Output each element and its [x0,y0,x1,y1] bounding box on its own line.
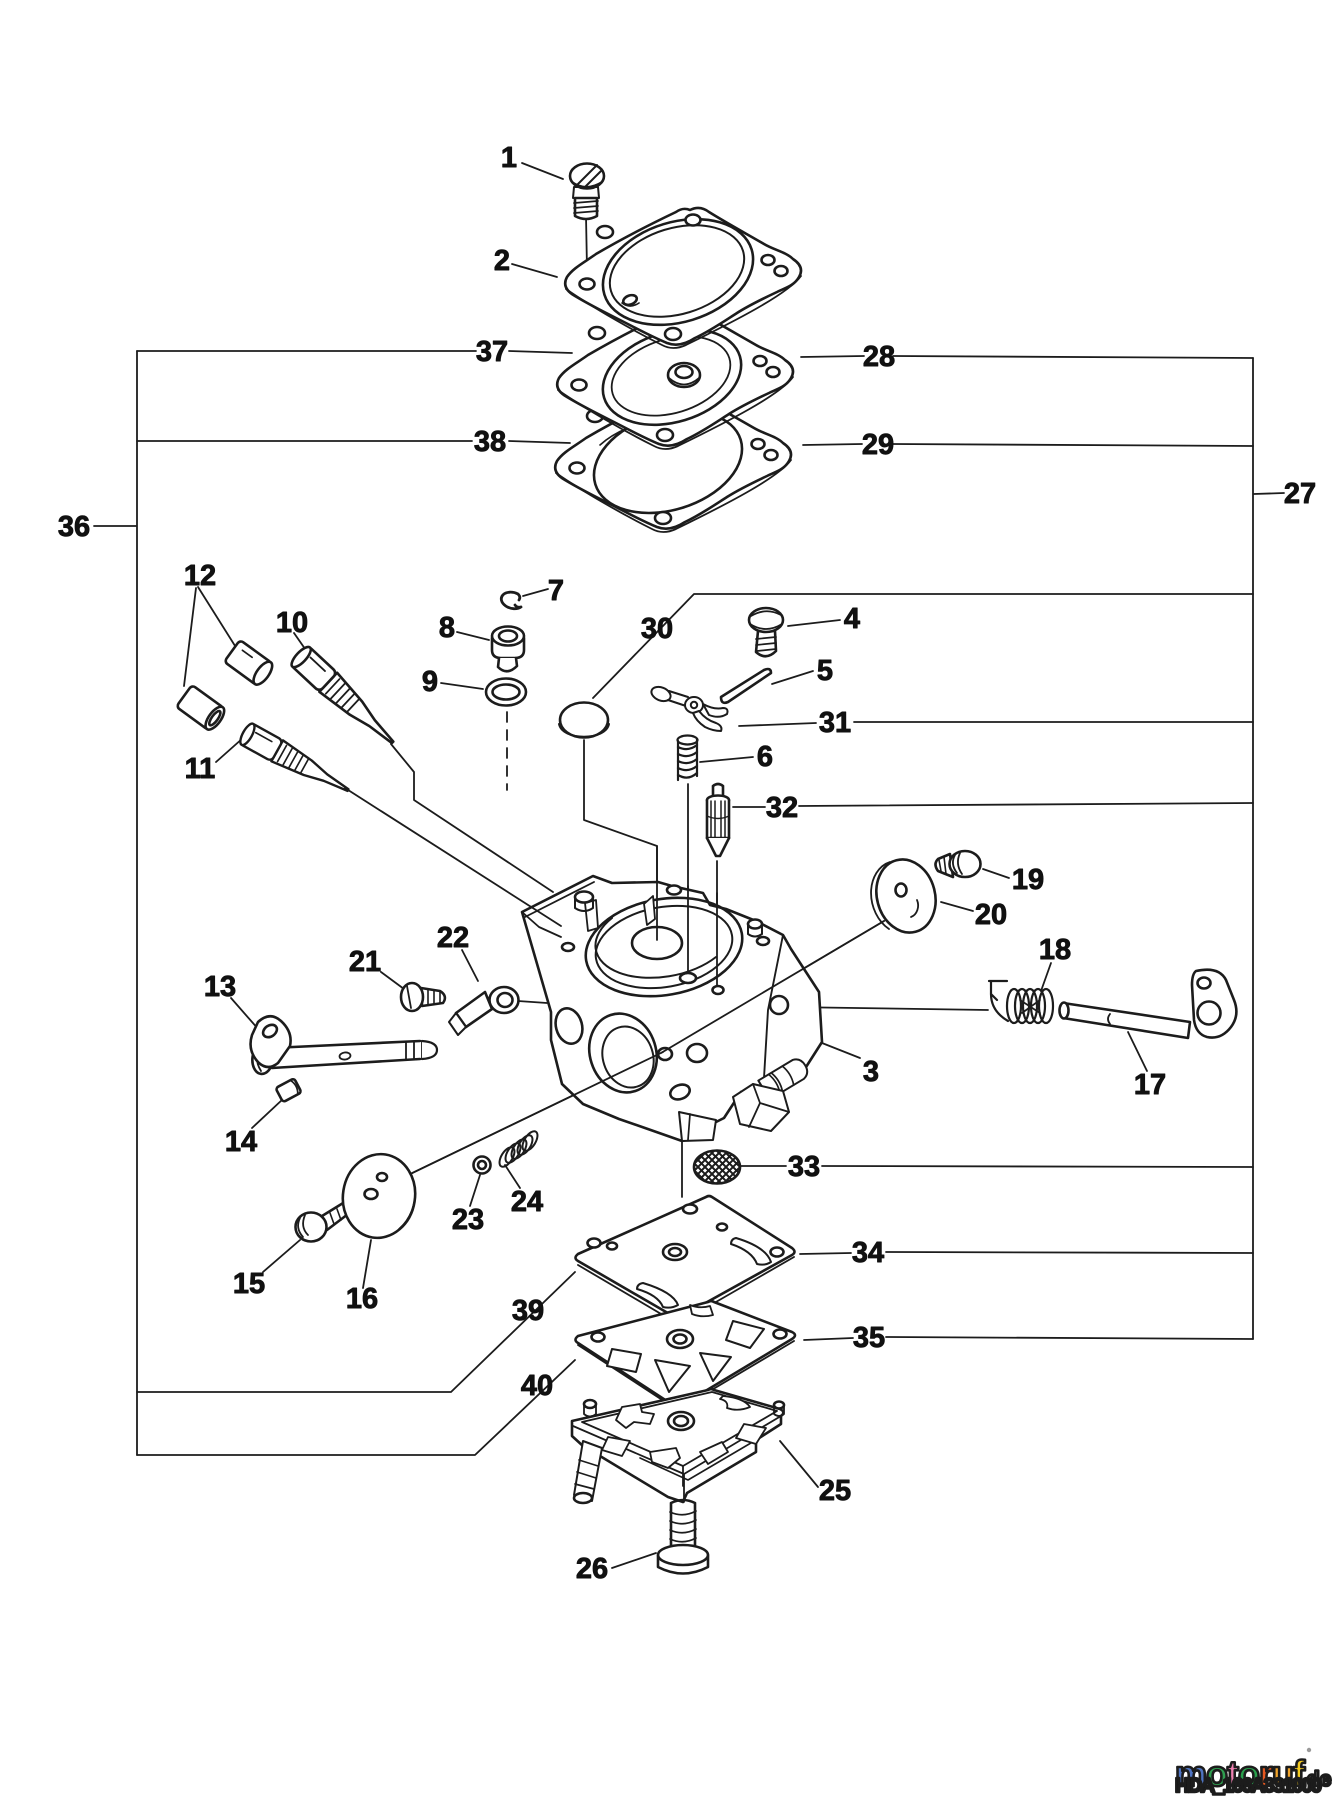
svg-text:26: 26 [576,1553,608,1585]
svg-text:13: 13 [204,971,236,1003]
svg-text:HDA_166A331000: HDA_166A331000 [1175,1775,1322,1797]
svg-text:32: 32 [766,792,798,824]
svg-text:40: 40 [521,1370,553,1402]
svg-text:11: 11 [185,753,216,785]
svg-text:4: 4 [844,603,860,635]
svg-text:18: 18 [1039,934,1071,966]
svg-text:8: 8 [439,612,455,644]
svg-text:38: 38 [474,426,506,458]
svg-text:7: 7 [548,575,564,607]
svg-text:35: 35 [853,1322,885,1354]
svg-text:15: 15 [233,1268,265,1300]
svg-text:9: 9 [422,666,438,698]
svg-text:23: 23 [452,1204,484,1236]
svg-text:28: 28 [863,341,895,373]
svg-text:21: 21 [349,946,381,978]
svg-text:20: 20 [975,899,1007,931]
svg-text:10: 10 [276,607,308,639]
svg-text:19: 19 [1012,864,1044,896]
svg-text:39: 39 [512,1295,544,1327]
svg-text:29: 29 [862,429,894,461]
svg-text:33: 33 [788,1151,820,1183]
svg-text:30: 30 [641,613,673,645]
svg-text:14: 14 [225,1126,257,1158]
svg-text:25: 25 [819,1475,851,1507]
svg-text:36: 36 [58,511,90,543]
svg-text:17: 17 [1134,1069,1166,1101]
svg-text:24: 24 [511,1186,543,1218]
svg-text:27: 27 [1284,478,1316,510]
svg-text:22: 22 [437,922,469,954]
svg-text:3: 3 [863,1056,879,1088]
svg-text:2: 2 [494,245,510,277]
svg-text:1: 1 [501,142,517,174]
svg-text:5: 5 [817,655,833,687]
svg-text:16: 16 [346,1283,378,1315]
svg-text:31: 31 [819,707,851,739]
svg-text:12: 12 [184,560,216,592]
svg-text:6: 6 [757,741,773,773]
svg-text:34: 34 [852,1237,884,1269]
svg-text:37: 37 [476,336,508,368]
